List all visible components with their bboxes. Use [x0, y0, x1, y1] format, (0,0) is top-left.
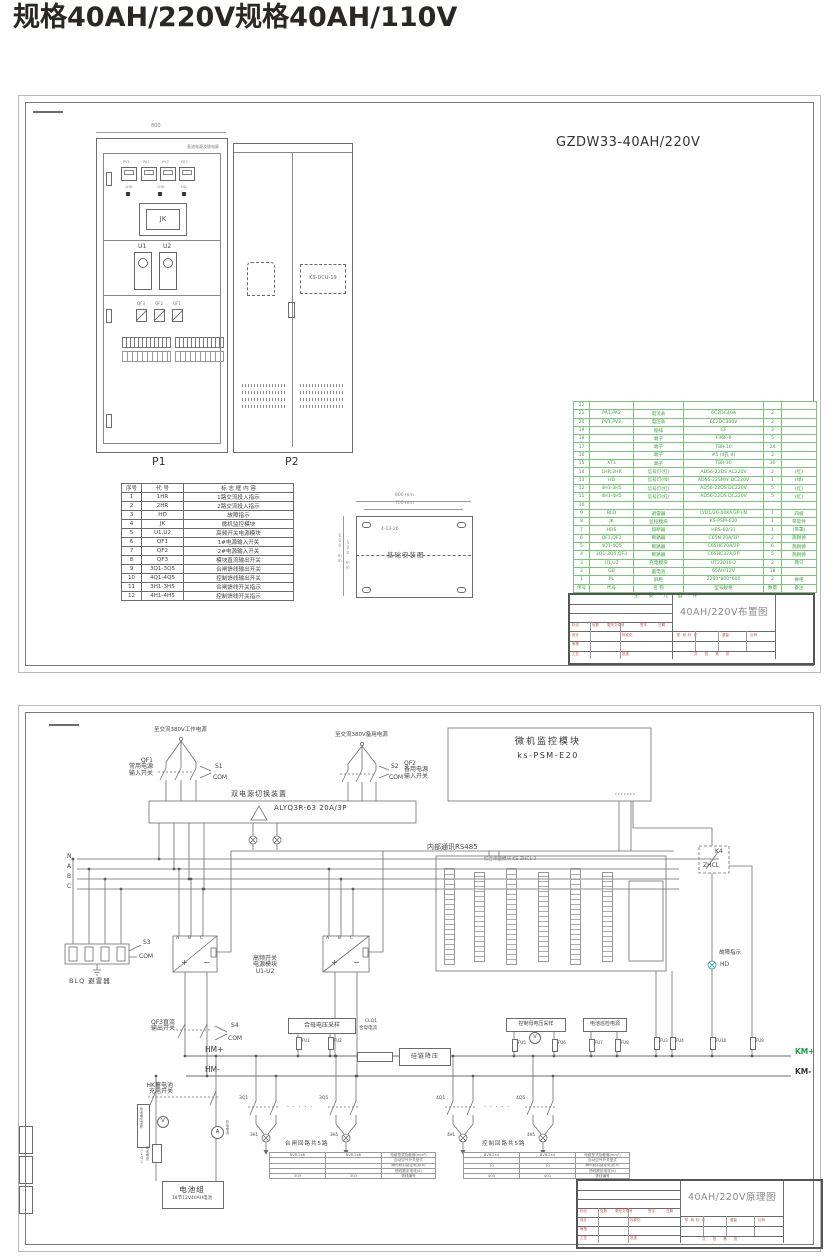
- fuse-label-fu6: FU6: [558, 1041, 566, 1045]
- tb-check: 审核: [572, 643, 579, 647]
- hinge-mark: [106, 414, 112, 428]
- table-cell: 馈线编号: [382, 1174, 436, 1179]
- table-cell: [590, 402, 634, 410]
- k4-label: K4: [715, 849, 723, 855]
- tb-drawing-title: 40AH/220V原理图: [682, 1193, 782, 1203]
- source2-label: 至交流380V备用电源: [335, 733, 388, 739]
- meter-label: PA1: [143, 161, 150, 165]
- table-cell: 19: [574, 427, 590, 435]
- lamp-label: 1HR: [125, 186, 133, 190]
- table-cell: 控制馈线开关指示: [184, 592, 294, 601]
- table-cell: 故障指示: [184, 511, 294, 520]
- hm-plus-label: HM+: [205, 1046, 223, 1054]
- table-cell: 3Q5: [270, 1174, 326, 1179]
- table-cell: 2路交流投入指示: [184, 502, 294, 511]
- table-cell: 20: [574, 419, 590, 427]
- table-cell: 6: [764, 543, 782, 551]
- clq2-sub-label: 电池电流: [145, 1146, 149, 1160]
- table-cell: 5: [764, 493, 782, 501]
- bus-label-a: A: [67, 864, 71, 870]
- psm-title: 微机监控模块: [498, 738, 598, 748]
- closing-bus-sampling-box: 合母电压采样: [288, 1018, 356, 1034]
- tb-line: [672, 641, 775, 642]
- table-cell: 17: [574, 443, 590, 451]
- qf1-line3: 输入开关: [129, 770, 153, 777]
- table-cell: 3: [122, 511, 142, 520]
- parts-table: 2221PA1,PA2电流表6C2DC40A220PV1,PV2电压表6C2DC…: [573, 401, 817, 593]
- tb-line: [578, 1235, 680, 1236]
- table-cell: BLQ: [590, 510, 634, 518]
- rect2-c: C: [350, 937, 353, 942]
- table-cell: 名 称: [634, 585, 684, 593]
- rect2-plus: +: [331, 959, 338, 967]
- terminal-strip: [175, 351, 224, 362]
- table-cell: 3Q1-3Q5: [142, 565, 184, 574]
- table-cell: PA1,PA2: [590, 410, 634, 418]
- model-title: GZDW33-40AH/220V: [556, 136, 700, 150]
- bus-label-b: B: [67, 874, 71, 880]
- tb-count: 处数: [592, 624, 599, 628]
- table-cell: [634, 402, 684, 410]
- table-cell: 3: [764, 427, 782, 435]
- table-cell: 信号灯(红): [634, 493, 684, 501]
- table-cell: 6C2DC40A: [684, 410, 764, 418]
- table-cell: 5: [764, 551, 782, 559]
- legend-table: 序号代 号标 志 框 内 容11HR1路交流投入指示22HR2路交流投入指示3H…: [121, 483, 294, 601]
- table-cell: 屏柜: [634, 576, 684, 584]
- table-cell: 5: [122, 529, 142, 538]
- table-cell: 6: [122, 538, 142, 547]
- terminal-strip-column: [602, 872, 613, 962]
- tb-sign: 签字: [640, 624, 647, 628]
- terminal-strip: [122, 337, 171, 348]
- breaker-symbol: [172, 309, 183, 322]
- p1-caption: P1: [152, 456, 166, 468]
- table-cell: (红): [782, 468, 817, 476]
- table-cell: 控制馈线输出开关: [184, 574, 294, 583]
- table-cell: AD56-22DS DC220V: [684, 485, 764, 493]
- breaker-symbol: [136, 309, 147, 322]
- table-cell: 7: [574, 526, 590, 534]
- battery-pack-box: 电池组 18节12V40AH电池: [162, 1181, 224, 1209]
- table-cell: CF: [684, 427, 764, 435]
- terminal-strip: [122, 351, 171, 362]
- hd-label: HD: [720, 962, 729, 968]
- table-cell: [764, 502, 782, 510]
- u2-label: U2: [163, 244, 171, 250]
- table-cell: (红): [782, 485, 817, 493]
- table-cell: 15: [574, 460, 590, 468]
- table-cell: 3H1-3H5: [142, 583, 184, 592]
- s1-com-label: COM: [213, 775, 227, 781]
- qf3-line2: 输出开关: [151, 1025, 175, 1032]
- table-cell: 型号规格: [684, 585, 764, 593]
- closing-h1-label: 3H1: [250, 1133, 258, 1137]
- lamp-label: HD: [181, 186, 186, 190]
- table-cell: [590, 435, 634, 443]
- table-cell: [782, 435, 817, 443]
- p1-top-label: 直流电源及馈电屏: [187, 145, 219, 149]
- lamp-2hr: [158, 192, 162, 196]
- tb-scale: 比例: [750, 634, 757, 638]
- jk-monitor-outer: JK: [139, 203, 187, 236]
- tb-check: 审核: [580, 1228, 587, 1232]
- p1-panel: [103, 153, 221, 444]
- dim-600mm: 600 mm: [337, 533, 341, 563]
- table-cell: 8: [122, 556, 142, 565]
- table-cell: 2: [574, 568, 590, 576]
- tb-date: 日期: [658, 624, 665, 628]
- silicon-dropper-box: 硅链降压: [399, 1048, 451, 1066]
- table-cell: [684, 502, 764, 510]
- tb-sheets: 共 张 第 张: [702, 1238, 740, 1242]
- table-cell: 2: [764, 452, 782, 460]
- table-cell: 2#电源输入开关: [184, 547, 294, 556]
- bolt-slot: [362, 587, 371, 593]
- rect1-a: A: [176, 937, 179, 942]
- fuse-label-fu5: FU5: [518, 1041, 526, 1045]
- table-cell: XT1: [590, 460, 634, 468]
- table-cell: 1HR,2HR: [590, 468, 634, 476]
- fuse-label-fu3: FU3: [660, 1039, 668, 1043]
- table-cell: 1: [764, 510, 782, 518]
- qf-label: QF1: [173, 302, 181, 306]
- tb-file: 更改文件号: [615, 1210, 633, 1214]
- table-cell: 3H1-3H5: [590, 485, 634, 493]
- fuse-label-fu1: FU1: [302, 1039, 310, 1043]
- tb-drawing-title: 40AH/220V布置图: [674, 608, 774, 618]
- lamp-label: 2HR: [157, 186, 165, 190]
- table-cell: 带软件: [782, 518, 817, 526]
- bus-label-n: N: [67, 854, 72, 860]
- clq1-sub-label: 合母电流: [359, 1027, 377, 1032]
- table-cell: 四极: [782, 510, 817, 518]
- table-cell: 9: [574, 510, 590, 518]
- vent-strip: [300, 405, 344, 408]
- table-cell: 电流表: [634, 410, 684, 418]
- qf3-label: QF3直流 输出开关: [139, 1020, 175, 1033]
- table-cell: C65HC32A/2P: [684, 551, 764, 559]
- tb-line: [703, 1216, 704, 1236]
- fuse-label-fu8: FU8: [621, 1041, 629, 1045]
- table-cell: HRS-60/31: [684, 526, 764, 534]
- rect1-c: C: [200, 937, 203, 942]
- zhcl-relay-label: ZHCL: [703, 863, 719, 869]
- tb-line: [570, 604, 672, 605]
- rectifier-module-u1: [134, 252, 152, 290]
- title-block-1: 标记 处数 更改文件号 签字 日期 设计 标准化 审核 工艺 批准 40AH/2…: [568, 593, 815, 665]
- vent-strip: [242, 405, 286, 408]
- p1-dim-line: [96, 132, 226, 133]
- tb-line: [672, 631, 775, 632]
- table-cell: U1,U2: [142, 529, 184, 538]
- bus-label-c: C: [67, 884, 71, 890]
- table-cell: 断路器: [634, 543, 684, 551]
- vent-strip: [242, 384, 286, 387]
- voltmeter-control-bus: V: [529, 1032, 541, 1044]
- table-cell: [782, 568, 817, 576]
- battery-voltage-sampling-label: 电池电压采样: [139, 1107, 143, 1129]
- table-cell: 1: [122, 493, 142, 502]
- tb-line: [570, 641, 672, 642]
- table-cell: 65AH/12V: [684, 568, 764, 576]
- breaker-symbol: [154, 309, 165, 322]
- bolt-note: 4-13-20: [381, 528, 399, 533]
- table-cell: [782, 460, 817, 468]
- table-cell: 避雷器: [634, 510, 684, 518]
- table-cell: 4: [574, 551, 590, 559]
- hk-line2: 充电开关: [149, 1088, 173, 1095]
- table-cell: 代号: [590, 585, 634, 593]
- s1-label: S1: [215, 764, 223, 770]
- blq-label: BLQ 避雷器: [69, 978, 111, 985]
- tb-file: 更改文件号: [607, 624, 625, 628]
- table-cell: 铜排: [634, 427, 684, 435]
- table-cell: T8R-10: [684, 443, 764, 451]
- table-cell: (红): [782, 493, 817, 501]
- table-cell: 1: [764, 518, 782, 526]
- table-cell: AD56-22DS DC220V: [684, 493, 764, 501]
- sheet1-corner-tag: [33, 105, 63, 113]
- p2-cabinet: KS-DCU-19: [233, 143, 353, 453]
- voltmeter-letter: V: [161, 1119, 164, 1124]
- rect1-minus: −: [203, 959, 210, 967]
- terminal-strip-column: [570, 868, 581, 965]
- panel-meter-pa1: [141, 167, 157, 181]
- tb-divider: [775, 595, 776, 659]
- qf2-label: QF2 备用电源 输入开关: [404, 761, 428, 780]
- tb-line: [578, 1199, 680, 1200]
- tb-line: [570, 651, 672, 652]
- terminal-strip: [175, 337, 224, 348]
- closing-circuits-title: 合闸回路共5路: [285, 1142, 329, 1148]
- table-cell: 12: [122, 592, 142, 601]
- table-cell: HD: [142, 511, 184, 520]
- table-cell: 2HR: [142, 502, 184, 511]
- table-cell: 16: [574, 452, 590, 460]
- rect2-minus: −: [353, 959, 360, 967]
- tb-line: [570, 631, 672, 632]
- table-cell: T8R-30: [684, 460, 764, 468]
- closing-q1-label: 3Q1: [239, 1097, 248, 1102]
- table-cell: 2: [764, 468, 782, 476]
- table-cell: 4: [122, 520, 142, 529]
- foundation-title: 基础安装图: [387, 552, 425, 559]
- table-cell: 18: [574, 435, 590, 443]
- table-cell: 4H1-4H5: [590, 493, 634, 501]
- hm-minus-label: HM-: [205, 1066, 220, 1074]
- fuse-label-fu4: FU4: [676, 1039, 684, 1043]
- u1-label: U1: [138, 244, 146, 250]
- table-cell: 24: [764, 443, 782, 451]
- table-cell: C65HC20A/2P: [684, 543, 764, 551]
- battery-pack-spec: 18节12V40AH电池: [163, 1197, 221, 1202]
- control-h5-label: 4H5: [527, 1133, 535, 1137]
- table-cell: 4H1-4H5: [142, 592, 184, 601]
- fuse-label-fu7: FU7: [595, 1041, 603, 1045]
- tb-sign: 签字: [648, 1210, 655, 1214]
- closing-dots: · · · · ·: [287, 1105, 313, 1111]
- page-title: 规格40AH/220V规格40AH/110V: [13, 4, 457, 33]
- s2-com-label: COM: [389, 775, 403, 781]
- ammeter-letter: A: [216, 1130, 220, 1136]
- battery-inspection-label: 电池巡检电源: [590, 1022, 620, 1027]
- tb-approve: 批准: [630, 1237, 637, 1241]
- table-cell: 11: [574, 493, 590, 501]
- table-cell: [782, 452, 817, 460]
- table-cell: LYD1/20-40KA/3P+N: [684, 510, 764, 518]
- rectifier-caption: 高频开关 电源模块 U1-U2: [241, 956, 289, 975]
- closing-q5-label: 3Q5: [319, 1097, 328, 1102]
- tb-line: [680, 1226, 783, 1227]
- tb-line: [578, 1190, 680, 1191]
- sheet2-schematic-drawing: 至交流380V工作电源 至交流380V备用电源 QF1 常用电源 输入开关 S1…: [18, 705, 821, 1252]
- tb-divider: [783, 1181, 784, 1243]
- tb-line: [578, 1217, 680, 1218]
- table-cell: 9: [122, 565, 142, 574]
- table-cell: [634, 502, 684, 510]
- table-cell: 22: [574, 402, 590, 410]
- table-cell: 30: [764, 460, 782, 468]
- title-block-2: 标记 处数 更改文件号 签字 日期 设计 标准化 审核 工艺 批准 40AH/2…: [576, 1179, 823, 1249]
- table-cell: 13: [574, 477, 590, 485]
- table-cell: QF1,QF2: [590, 535, 634, 543]
- qf2-line3: 输入开关: [404, 773, 428, 780]
- bolt-slot: [457, 587, 466, 593]
- tb-design: 设计: [572, 634, 579, 638]
- table-cell: 4Q1-4Q5: [142, 574, 184, 583]
- psm-model: ks-PSM-E20: [498, 752, 598, 760]
- tb-line: [718, 631, 719, 651]
- tb-line: [754, 1216, 755, 1236]
- table-cell: 1: [574, 576, 590, 584]
- table-cell: AD56-22DS AC220V: [684, 468, 764, 476]
- s4-com-label: COM: [228, 1036, 242, 1042]
- tb-line: [680, 1216, 783, 1217]
- qf-label: QF3: [137, 302, 145, 306]
- rect2-a: A: [326, 937, 329, 942]
- vent-strip: [300, 391, 344, 394]
- table-cell: [590, 443, 634, 451]
- tb-weight: 重量: [722, 634, 729, 638]
- closing-h5-label: 3H5: [330, 1133, 338, 1137]
- tb-mark: 标记: [580, 1210, 587, 1214]
- table-cell: 14: [574, 468, 590, 476]
- dim-line: [364, 509, 463, 510]
- sheet1-layout-drawing: 800 直流电源及馈电屏 PV1 PA1 PV2 PA2 1HR 2HR HD …: [18, 95, 821, 673]
- ats-model: ALYQ3R-63 20A/3P: [274, 805, 347, 812]
- p2-door-handle: [288, 302, 295, 318]
- table-cell: 21: [574, 410, 590, 418]
- table-cell: AD56-22SM/Y DC220V: [684, 477, 764, 485]
- bolt-slot: [362, 522, 371, 528]
- table-cell: KS-PSM-E20: [684, 518, 764, 526]
- closing-feeder-table: BVR-2x6BVR-2x6电缆型式及截面(mm²)自动空气开关型式瞬时脱扣整定…: [269, 1152, 436, 1179]
- shunt-clq2: [152, 1144, 162, 1163]
- p2-window: [247, 262, 275, 296]
- control-feeder-table: BVR-2x4BVR-2x4电缆型式及截面(mm²)自动空气开关型式2020瞬时…: [463, 1152, 630, 1179]
- table-cell: 两只: [782, 560, 817, 568]
- table-cell: QF3: [142, 556, 184, 565]
- battery-switch-label: HK蓄电池 充电开关: [137, 1083, 173, 1096]
- ammeter-charge: A: [211, 1126, 224, 1139]
- table-cell: (绿): [782, 477, 817, 485]
- p2-caption: P2: [285, 456, 299, 468]
- tb-line: [598, 1208, 599, 1243]
- p1-section-divider: [103, 295, 221, 296]
- table-cell: 18: [764, 568, 782, 576]
- source1-label: 至交流380V工作电源: [154, 728, 207, 734]
- jk-monitor-screen: JK: [146, 209, 180, 230]
- rect1-b: B: [188, 937, 191, 942]
- control-q5-label: 4Q5: [516, 1097, 525, 1102]
- table-cell: 监控模块: [634, 518, 684, 526]
- table-cell: [782, 410, 817, 418]
- table-cell: 序号: [122, 484, 142, 493]
- tb-line: [726, 1216, 727, 1236]
- table-cell: 断路器: [634, 535, 684, 543]
- table-cell: UT22010-2: [684, 560, 764, 568]
- table-cell: [764, 402, 782, 410]
- table-cell: 合闸馈线开关指示: [184, 583, 294, 592]
- p2-door-split: [292, 152, 293, 447]
- dim-700mm: 700 mm: [395, 502, 414, 507]
- control-h1-label: 4H1: [447, 1133, 455, 1137]
- s3-label: S3: [143, 940, 151, 946]
- dcu-label: KS-DCU-19: [309, 276, 336, 281]
- qf1-label: QF1 常用电源 输入开关: [117, 758, 153, 777]
- vent-strip: [300, 384, 344, 387]
- table-cell: 信号灯(红): [634, 485, 684, 493]
- s3-com-label: COM: [139, 954, 153, 960]
- tb-line: [570, 613, 672, 614]
- table-cell: 3Q1: [326, 1174, 382, 1179]
- table-cell: 5: [764, 435, 782, 443]
- table-cell: 模块直流输出开关: [184, 556, 294, 565]
- jk-label: JK: [160, 216, 167, 223]
- panel-meter-pv2: [160, 167, 176, 181]
- table-cell: [782, 427, 817, 435]
- meter-label: PA2: [181, 161, 188, 165]
- table-cell: QF2: [142, 547, 184, 556]
- clq2-label: CLQ2: [139, 1148, 143, 1164]
- panel-meter-pv1: [121, 167, 137, 181]
- tb-divider: [680, 1181, 681, 1243]
- table-cell: 1路交流投入指示: [184, 493, 294, 502]
- table-cell: PV1,PV2: [590, 419, 634, 427]
- vent-strip: [300, 398, 344, 401]
- table-cell: #5 (4孔-4): [684, 452, 764, 460]
- table-cell: 10: [574, 502, 590, 510]
- table-cell: 2: [122, 502, 142, 511]
- table-cell: 2: [764, 410, 782, 418]
- battery-pack-title: 电池组: [163, 1186, 221, 1194]
- ats-title: 双电源切换装置: [231, 791, 287, 798]
- rs485-label: 内部通讯RS485: [427, 844, 478, 851]
- tb-line: [695, 631, 696, 651]
- tb-scale: 比例: [758, 1219, 765, 1223]
- table-cell: 4Q5: [464, 1174, 520, 1179]
- table-cell: HD: [590, 477, 634, 485]
- table-cell: 端子: [634, 460, 684, 468]
- table-cell: 施耐德: [782, 543, 817, 551]
- table-cell: [590, 452, 634, 460]
- table-cell: 6C2DC300V: [684, 419, 764, 427]
- table-cell: 信号灯(红): [634, 468, 684, 476]
- engineering-drawing-page: { "page_title": "规格40AH/220V规格40AH/110V"…: [0, 0, 835, 1259]
- p1-cabinet: 直流电源及馈电屏 PV1 PA1 PV2 PA2 1HR 2HR HD JK U…: [96, 138, 228, 453]
- table-cell: (带罩): [782, 526, 817, 534]
